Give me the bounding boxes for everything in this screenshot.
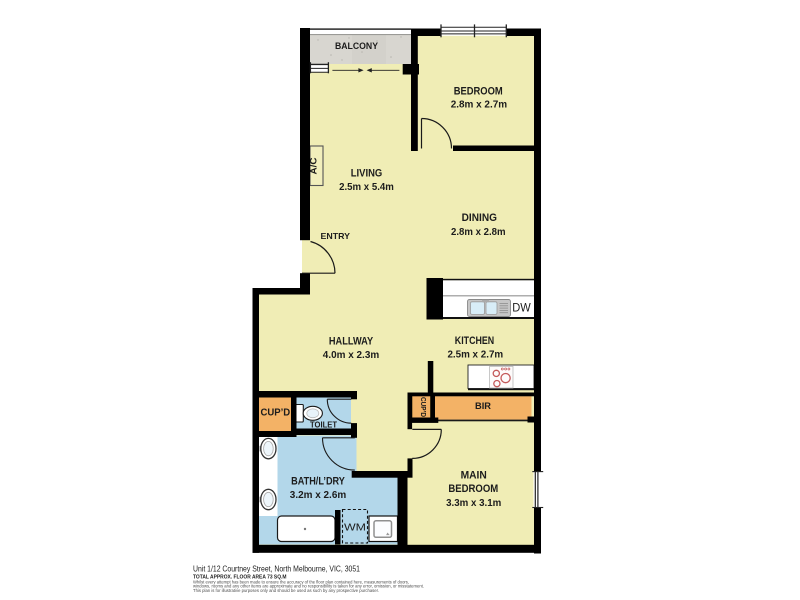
svg-text:TOILET: TOILET — [310, 419, 338, 429]
svg-text:ENTRY: ENTRY — [321, 231, 351, 241]
svg-text:BEDROOM: BEDROOM — [448, 483, 498, 495]
svg-text:MAIN: MAIN — [461, 470, 487, 482]
svg-text:2.5m x 2.7m: 2.5m x 2.7m — [447, 350, 503, 361]
svg-text:DW: DW — [512, 303, 531, 315]
svg-text:KITCHEN: KITCHEN — [455, 335, 494, 347]
svg-text:DINING: DINING — [462, 212, 497, 224]
svg-text:3.2m x 2.6m: 3.2m x 2.6m — [290, 490, 346, 501]
svg-text:CUP’D: CUP’D — [419, 397, 428, 417]
svg-text:BALCONY: BALCONY — [335, 41, 379, 52]
svg-text:Unit 1/12 Courtney Street, Nor: Unit 1/12 Courtney Street, North Melbour… — [193, 565, 360, 574]
svg-text:BATH/L’DRY: BATH/L’DRY — [291, 475, 345, 487]
svg-text:WM: WM — [344, 523, 366, 534]
svg-text:BEDROOM: BEDROOM — [454, 85, 503, 97]
svg-text:3.3m x 3.1m: 3.3m x 3.1m — [446, 498, 501, 509]
svg-text:HALLWAY: HALLWAY — [329, 336, 374, 348]
svg-text:2.8m x 2.8m: 2.8m x 2.8m — [451, 227, 506, 238]
svg-text:BIR: BIR — [475, 401, 491, 412]
svg-text:4.0m x 2.3m: 4.0m x 2.3m — [323, 350, 379, 361]
svg-text:LIVING: LIVING — [351, 167, 383, 179]
svg-text:2.5m x 5.4m: 2.5m x 5.4m — [339, 182, 394, 193]
svg-text:2.8m x 2.7m: 2.8m x 2.7m — [451, 100, 507, 111]
svg-text:CUP’D: CUP’D — [260, 406, 290, 418]
svg-text:This plan is for illustrative: This plan is for illustrative purposes o… — [193, 588, 379, 593]
